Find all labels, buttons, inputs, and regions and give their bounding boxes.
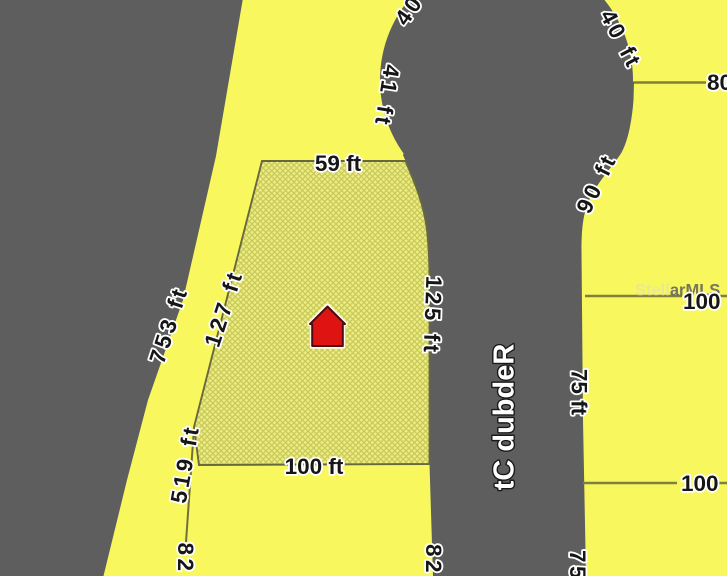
svg-text:82 ft: 82 ft: [173, 543, 198, 576]
svg-text:75 ft: 75 ft: [567, 369, 592, 416]
svg-text:100: 100: [683, 289, 721, 314]
svg-text:75 ft: 75 ft: [565, 550, 590, 576]
svg-text:125 ft: 125 ft: [419, 275, 447, 356]
svg-text:100 ft: 100 ft: [285, 454, 344, 479]
svg-text:82 ft: 82 ft: [421, 544, 446, 576]
svg-text:59 ft: 59 ft: [315, 151, 362, 176]
svg-text:100: 100: [681, 471, 719, 496]
svg-text:80 ft: 80 ft: [707, 70, 727, 95]
svg-text:tC dubdeR: tC dubdeR: [489, 344, 521, 491]
